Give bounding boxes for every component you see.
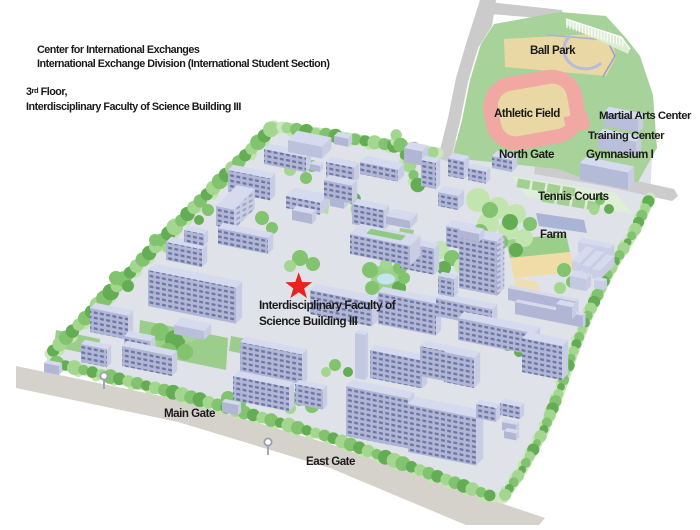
- svg-text:Farm: Farm: [540, 228, 567, 241]
- svg-text:North Gate: North Gate: [499, 148, 555, 161]
- svg-text:Gymnasium I: Gymnasium I: [586, 148, 654, 161]
- svg-text:Training Center: Training Center: [588, 130, 665, 142]
- svg-text:Science Building III: Science Building III: [259, 314, 357, 328]
- svg-text:Ball Park: Ball Park: [530, 44, 576, 57]
- svg-text:Main Gate: Main Gate: [164, 407, 216, 420]
- svg-text:Athletic Field: Athletic Field: [494, 107, 560, 120]
- svg-text:International Exchange Divisio: International Exchange Division (Interna…: [37, 58, 330, 70]
- svg-text:Center for International Excha: Center for International Exchanges: [37, 44, 200, 56]
- svg-text:Tennis Courts: Tennis Courts: [538, 190, 609, 203]
- svg-text:Interdisciplinary Faculty of S: Interdisciplinary Faculty of Science Bui…: [26, 101, 241, 113]
- svg-text:Interdisciplinary Faculty of: Interdisciplinary Faculty of: [259, 298, 396, 312]
- svg-text:East Gate: East Gate: [306, 455, 356, 468]
- svg-text:Martial Arts Center: Martial Arts Center: [599, 110, 692, 122]
